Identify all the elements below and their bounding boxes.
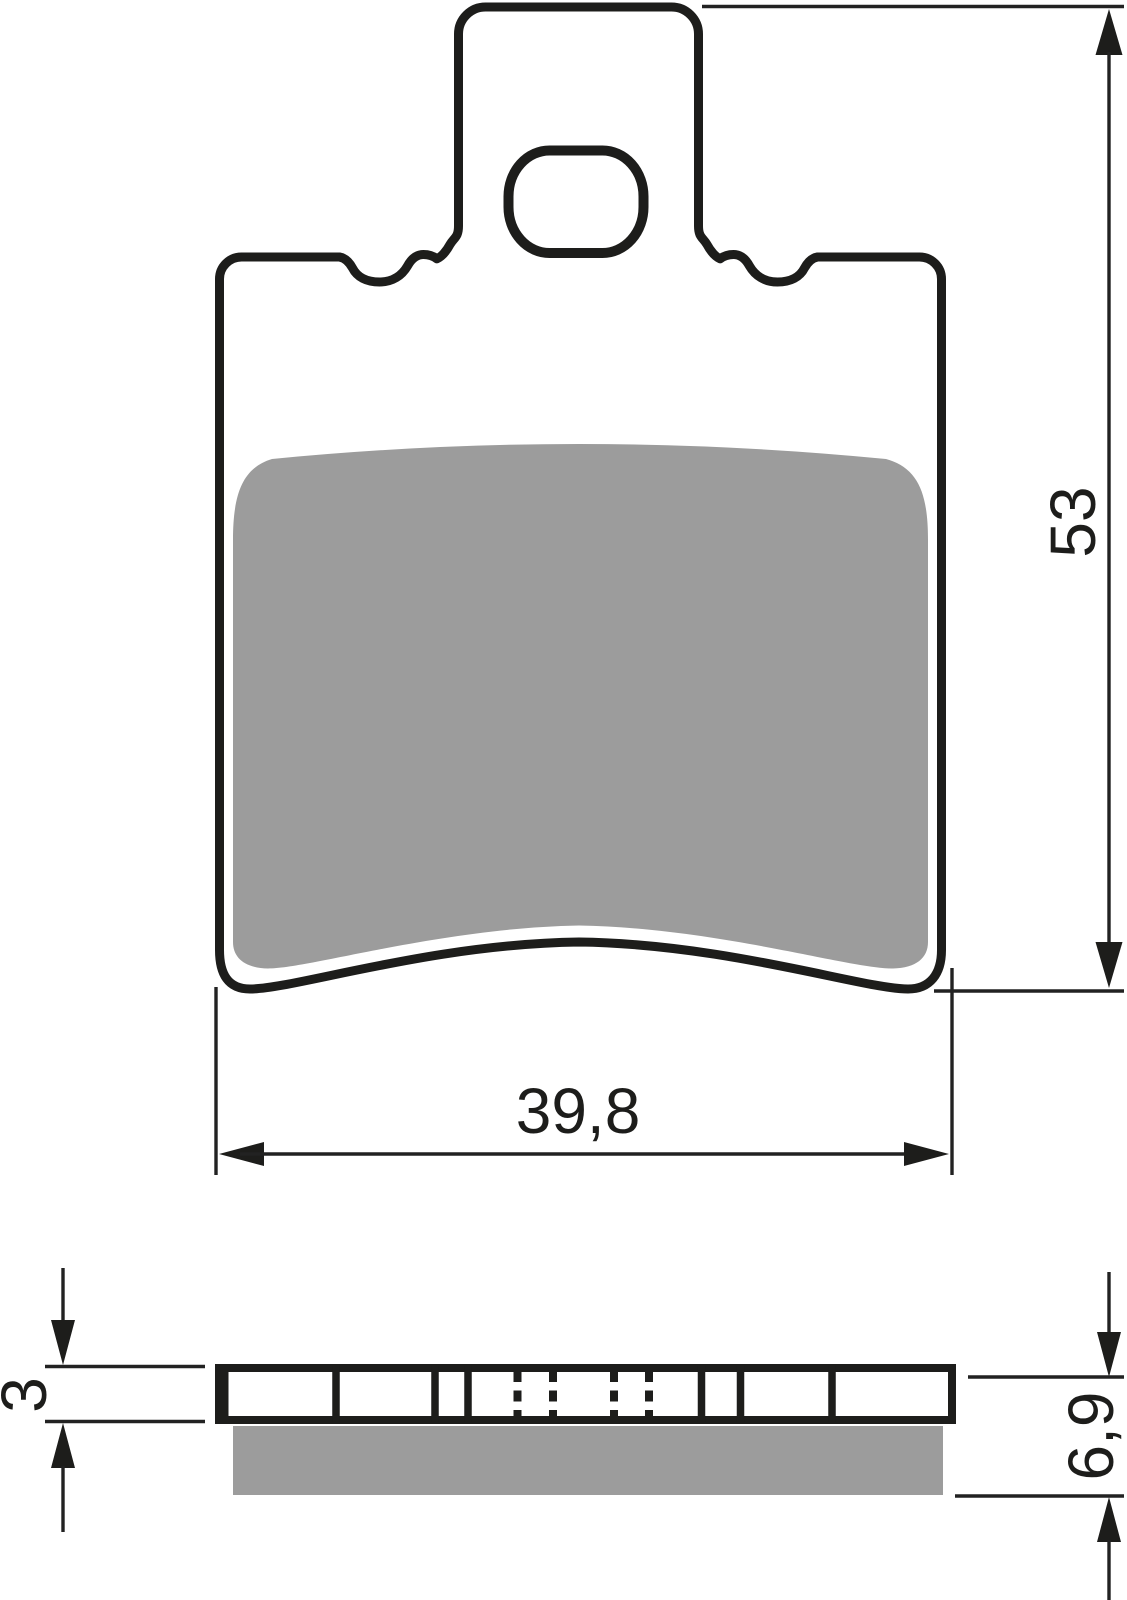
svg-text:39,8: 39,8 — [516, 1075, 641, 1147]
svg-text:53: 53 — [1037, 486, 1109, 557]
svg-text:3: 3 — [0, 1377, 60, 1413]
svg-text:6,9: 6,9 — [1055, 1392, 1127, 1481]
